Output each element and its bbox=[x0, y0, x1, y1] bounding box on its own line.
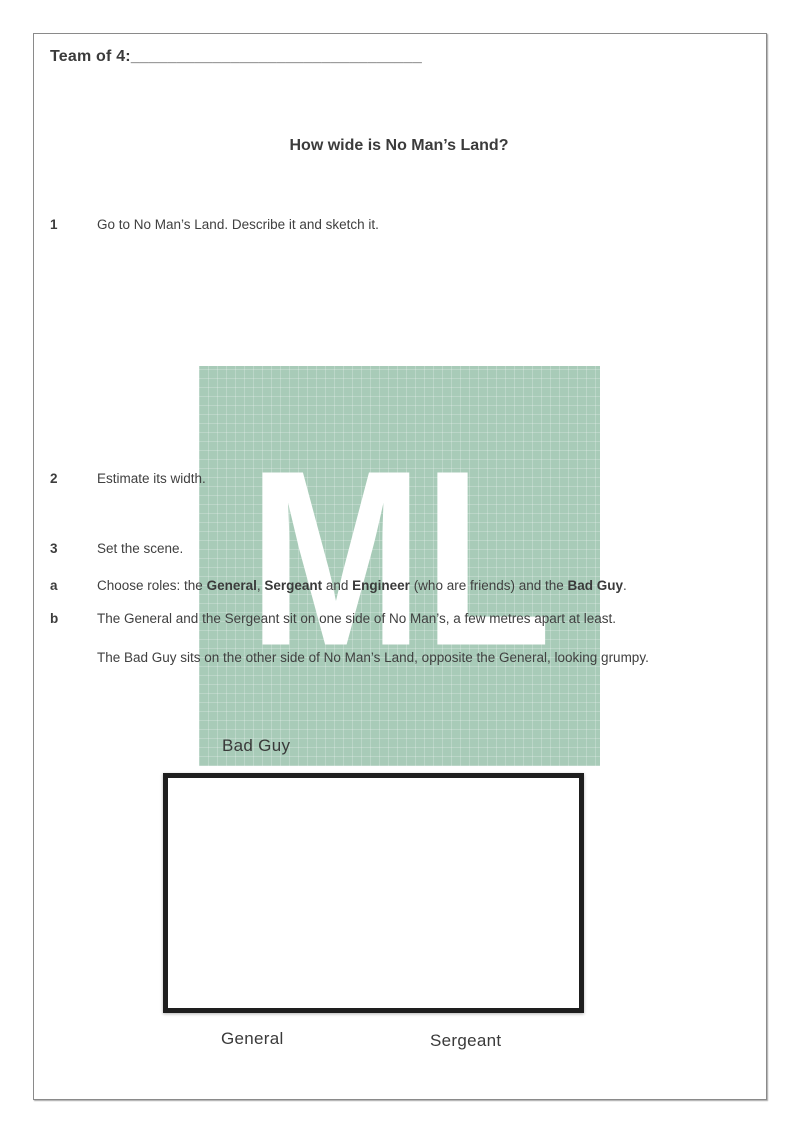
item-b-text-line1: The General and the Sergeant sit on one … bbox=[97, 611, 616, 627]
question-2-marker: 2 bbox=[50, 471, 58, 487]
team-label: Team of 4: bbox=[50, 48, 131, 65]
diagram-label-general: General bbox=[221, 1029, 284, 1049]
item-a-marker: a bbox=[50, 578, 58, 594]
question-3-marker: 3 bbox=[50, 541, 58, 557]
team-line: Team of 4:______________________________… bbox=[50, 48, 422, 66]
question-2-text: Estimate its width. bbox=[97, 471, 206, 487]
no-mans-land-box bbox=[163, 773, 584, 1013]
item-b-marker: b bbox=[50, 611, 58, 627]
question-3-text: Set the scene. bbox=[97, 541, 183, 557]
diagram-label-sergeant: Sergeant bbox=[430, 1031, 501, 1051]
question-1-text: Go to No Man’s Land. Describe it and ske… bbox=[97, 217, 379, 233]
team-name-blank: ________________________________ bbox=[131, 48, 422, 65]
worksheet-page: ML Team of 4:___________________________… bbox=[0, 0, 800, 1133]
item-a-text: Choose roles: the General, Sergeant and … bbox=[97, 578, 627, 594]
page-title: How wide is No Man’s Land? bbox=[33, 137, 765, 155]
text-layer: Team of 4:______________________________… bbox=[0, 0, 800, 1133]
question-1-marker: 1 bbox=[50, 217, 58, 233]
item-b-text-line2: The Bad Guy sits on the other side of No… bbox=[97, 650, 649, 666]
diagram-label-bad-guy: Bad Guy bbox=[222, 736, 290, 756]
